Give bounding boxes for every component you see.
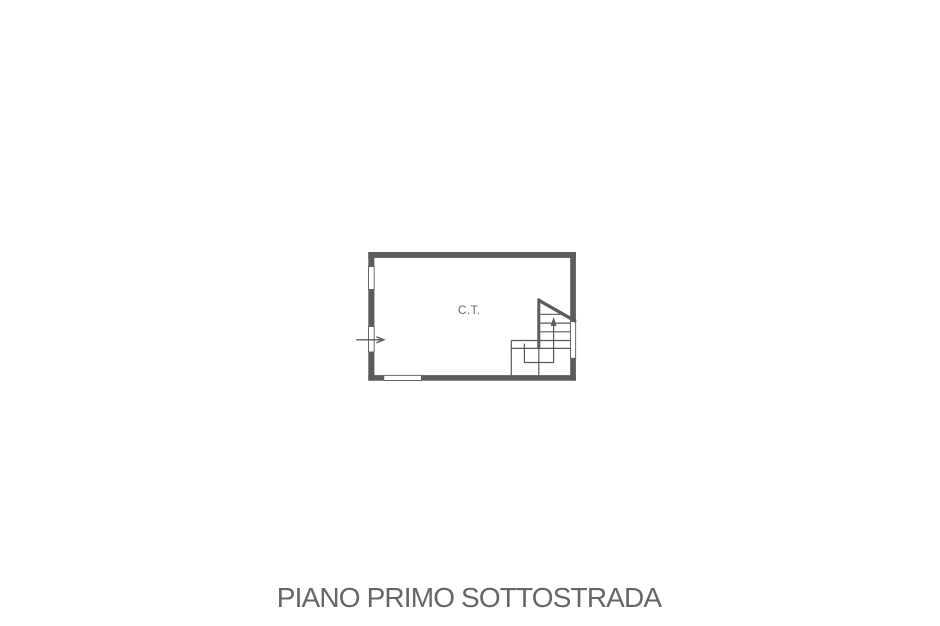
svg-text:PIANO PRIMO SOTTOSTRADA: PIANO PRIMO SOTTOSTRADA: [277, 582, 663, 613]
svg-text:C.T.: C.T.: [458, 303, 481, 317]
